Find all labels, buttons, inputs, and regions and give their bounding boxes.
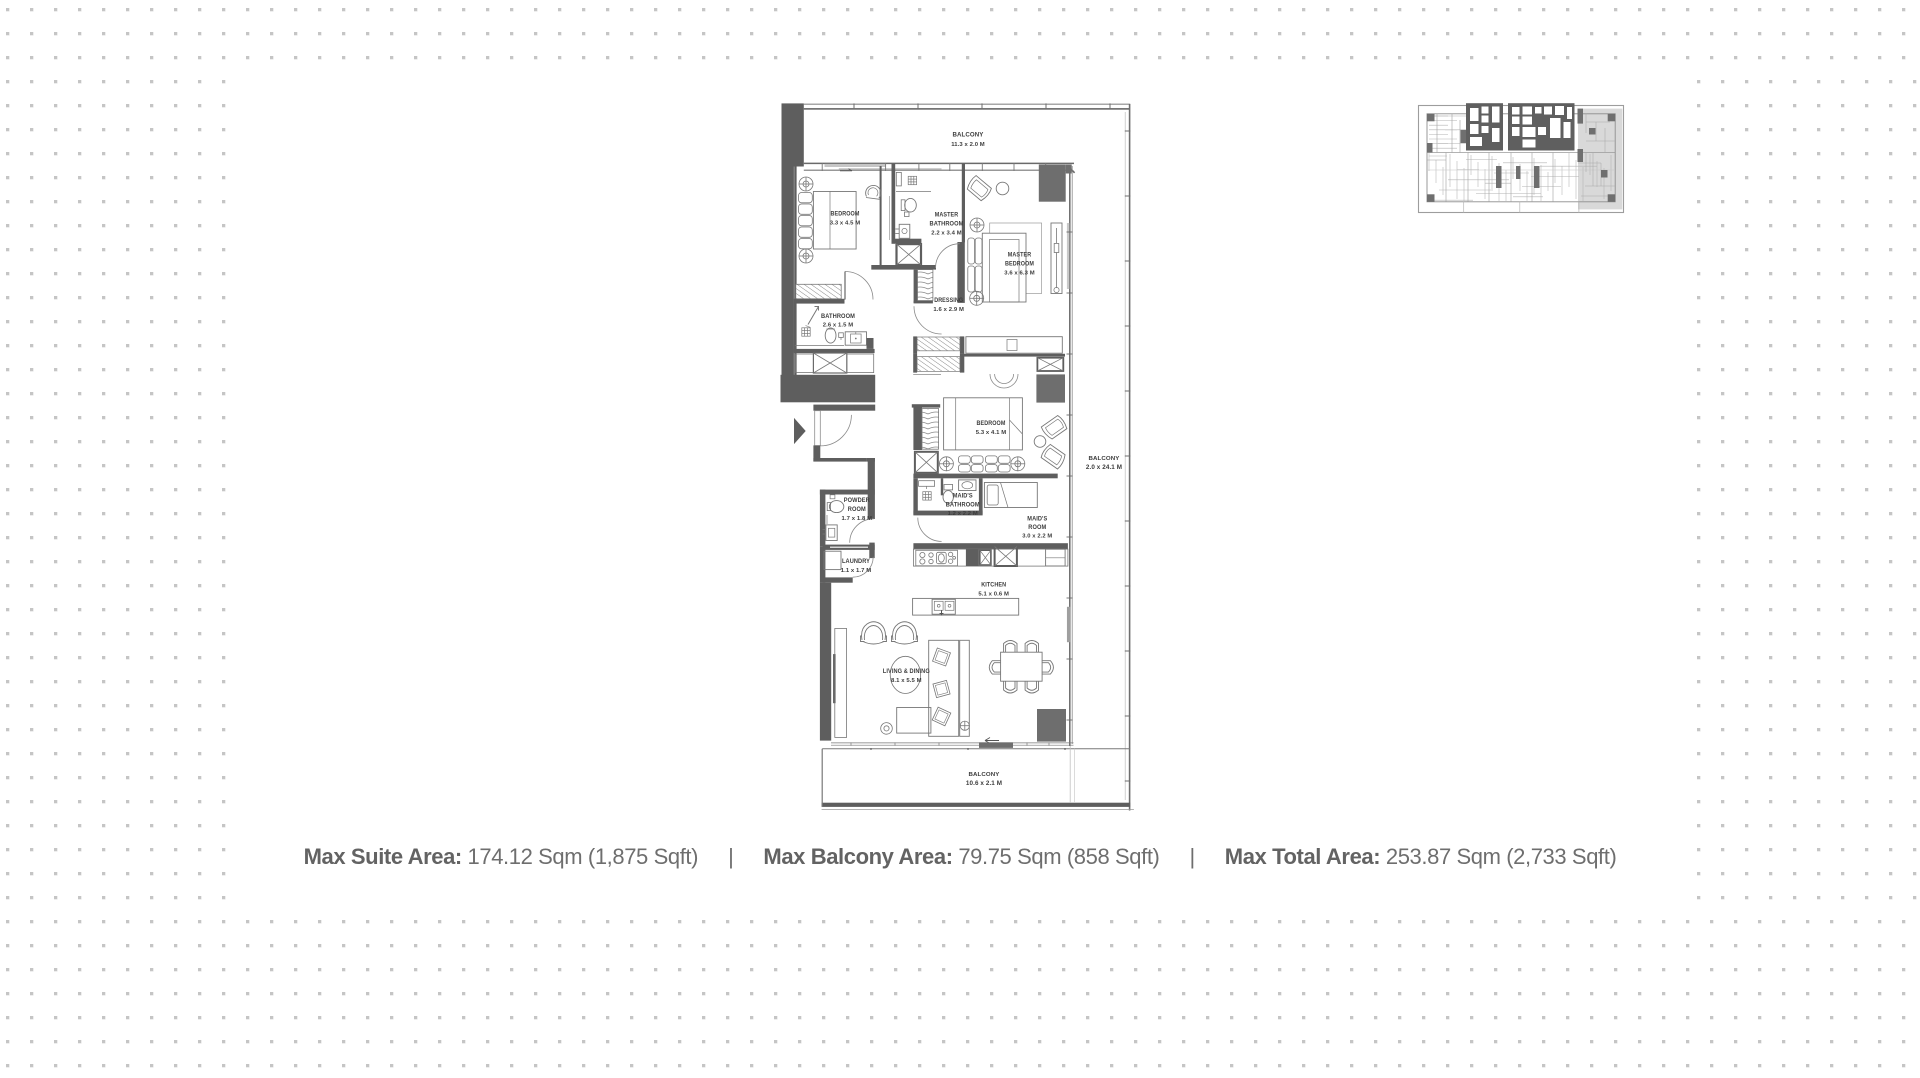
- svg-text:LIVING & DINING: LIVING & DINING: [883, 668, 930, 675]
- svg-text:10.6 x 2.1 M: 10.6 x 2.1 M: [966, 780, 1002, 787]
- svg-text:BEDROOM: BEDROOM: [977, 420, 1006, 427]
- svg-text:3.0 x 2.2 M: 3.0 x 2.2 M: [1022, 534, 1052, 540]
- svg-text:1.1 x 1.7 M: 1.1 x 1.7 M: [841, 568, 872, 574]
- svg-text:1.6 x 2.9 M: 1.6 x 2.9 M: [933, 307, 964, 313]
- svg-text:1.7 x 1.8 M: 1.7 x 1.8 M: [842, 516, 873, 522]
- svg-text:BEDROOM: BEDROOM: [831, 211, 860, 218]
- svg-text:2.2 x 3.4 M: 2.2 x 3.4 M: [931, 231, 962, 237]
- svg-text:BATHROOM: BATHROOM: [946, 501, 980, 508]
- svg-text:8.1 x 5.5 M: 8.1 x 5.5 M: [891, 678, 922, 684]
- svg-text:3.3 x 4.5 M: 3.3 x 4.5 M: [830, 221, 861, 227]
- svg-text:DRESSING: DRESSING: [934, 297, 963, 304]
- svg-text:BALCONY: BALCONY: [1089, 456, 1120, 462]
- svg-text:BALCONY: BALCONY: [969, 772, 1000, 778]
- svg-text:ROOM: ROOM: [848, 506, 866, 513]
- svg-text:BALCONY: BALCONY: [953, 132, 985, 139]
- svg-text:MAID'S: MAID'S: [953, 493, 973, 500]
- svg-text:KITCHEN: KITCHEN: [981, 582, 1006, 589]
- svg-text:5.1 x 0.6 M: 5.1 x 0.6 M: [978, 591, 1009, 597]
- svg-text:MASTER: MASTER: [935, 212, 959, 219]
- svg-text:LAUNDRY: LAUNDRY: [842, 558, 871, 565]
- svg-text:BEDROOM: BEDROOM: [1005, 261, 1034, 268]
- svg-text:POWDER: POWDER: [844, 497, 870, 504]
- svg-text:MASTER: MASTER: [1008, 252, 1032, 259]
- svg-text:2.0 x 24.1 M: 2.0 x 24.1 M: [1086, 464, 1122, 471]
- svg-text:BATHROOM: BATHROOM: [930, 221, 964, 228]
- svg-text:2.6 x 1.5 M: 2.6 x 1.5 M: [823, 323, 854, 329]
- svg-text:5.3 x 4.1 M: 5.3 x 4.1 M: [976, 430, 1007, 436]
- svg-text:MAID'S: MAID'S: [1027, 515, 1047, 522]
- svg-text:1.2 x 2.2 M: 1.2 x 2.2 M: [948, 511, 978, 517]
- svg-text:ROOM: ROOM: [1028, 524, 1046, 531]
- svg-text:3.6 x 6.3 M: 3.6 x 6.3 M: [1004, 270, 1035, 276]
- svg-text:11.3 x 2.0 M: 11.3 x 2.0 M: [951, 142, 985, 148]
- svg-text:BATHROOM: BATHROOM: [821, 313, 855, 320]
